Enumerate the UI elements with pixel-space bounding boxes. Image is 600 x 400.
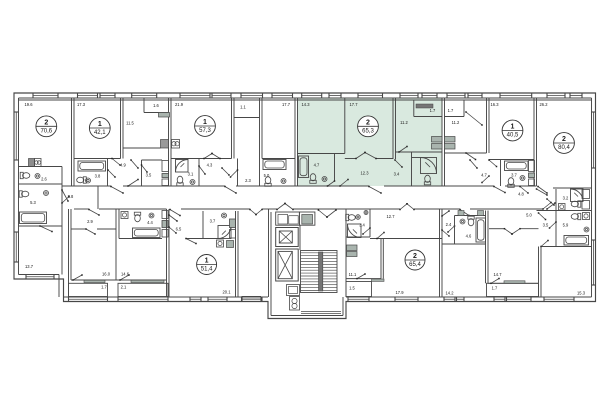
- svg-text:20.1: 20.1: [223, 290, 232, 295]
- svg-text:4.8: 4.8: [518, 192, 524, 197]
- svg-text:2.1: 2.1: [121, 285, 127, 290]
- svg-text:16.3: 16.3: [491, 102, 500, 107]
- svg-text:80,4: 80,4: [558, 145, 570, 151]
- svg-text:4.4: 4.4: [147, 220, 153, 225]
- svg-text:1.1: 1.1: [240, 105, 246, 110]
- svg-text:2.6: 2.6: [41, 177, 47, 182]
- svg-text:15.3: 15.3: [577, 291, 586, 296]
- svg-text:11.5: 11.5: [126, 121, 134, 126]
- svg-text:1.7: 1.7: [492, 286, 498, 291]
- svg-text:14.7: 14.7: [494, 272, 503, 277]
- svg-text:1: 1: [205, 258, 209, 265]
- svg-text:11.2: 11.2: [452, 120, 460, 125]
- svg-text:3.7: 3.7: [210, 219, 216, 224]
- svg-text:3.2: 3.2: [563, 196, 569, 201]
- svg-text:3.4: 3.4: [394, 172, 400, 177]
- svg-text:12.3: 12.3: [361, 171, 370, 176]
- svg-text:12.7: 12.7: [387, 214, 396, 219]
- svg-text:1.7: 1.7: [430, 108, 436, 113]
- svg-text:17.7: 17.7: [350, 102, 359, 107]
- svg-text:2.9: 2.9: [87, 219, 93, 224]
- svg-text:14.3: 14.3: [302, 102, 311, 107]
- svg-text:2: 2: [413, 253, 417, 260]
- svg-text:13.7: 13.7: [25, 264, 34, 269]
- svg-text:2.3: 2.3: [245, 178, 251, 183]
- svg-text:4.7: 4.7: [481, 173, 487, 178]
- svg-text:57,3: 57,3: [199, 128, 211, 134]
- svg-text:5.9: 5.9: [563, 223, 569, 228]
- svg-text:17.7: 17.7: [282, 102, 291, 107]
- svg-text:1.6: 1.6: [153, 103, 159, 108]
- svg-text:3.5: 3.5: [146, 173, 152, 178]
- svg-text:4.3: 4.3: [207, 163, 213, 168]
- svg-text:11.1: 11.1: [349, 272, 357, 277]
- svg-text:3.7: 3.7: [511, 173, 517, 178]
- svg-text:51,4: 51,4: [201, 267, 213, 273]
- svg-text:21.9: 21.9: [175, 102, 184, 107]
- svg-text:1.7: 1.7: [448, 108, 454, 113]
- svg-text:1.5: 1.5: [349, 286, 355, 291]
- svg-text:65,3: 65,3: [362, 129, 374, 135]
- svg-text:70,6: 70,6: [40, 129, 52, 135]
- svg-text:26.2: 26.2: [540, 102, 549, 107]
- svg-text:17.9: 17.9: [396, 290, 405, 295]
- svg-text:1.7: 1.7: [101, 285, 107, 290]
- svg-text:3.4: 3.4: [359, 223, 365, 228]
- svg-text:14.2: 14.2: [446, 291, 455, 296]
- svg-text:11.2: 11.2: [400, 120, 408, 125]
- svg-text:65,4: 65,4: [409, 262, 421, 268]
- svg-text:3.8: 3.8: [95, 174, 101, 179]
- svg-text:2: 2: [562, 136, 566, 143]
- svg-text:5.3: 5.3: [30, 200, 36, 205]
- svg-text:2: 2: [366, 120, 370, 127]
- svg-text:1: 1: [98, 121, 102, 128]
- svg-text:4.7: 4.7: [314, 163, 320, 168]
- svg-text:3.5: 3.5: [543, 223, 549, 228]
- svg-text:1: 1: [203, 119, 207, 126]
- svg-text:2: 2: [44, 120, 48, 127]
- svg-text:6.5: 6.5: [176, 227, 182, 232]
- svg-text:40,5: 40,5: [507, 133, 519, 139]
- svg-text:2.4: 2.4: [446, 222, 452, 227]
- svg-text:5.0: 5.0: [526, 213, 532, 218]
- svg-text:42,1: 42,1: [94, 130, 106, 136]
- svg-text:17.3: 17.3: [77, 102, 86, 107]
- svg-text:19.6: 19.6: [25, 102, 34, 107]
- svg-text:4.6: 4.6: [466, 234, 472, 239]
- svg-text:1: 1: [511, 124, 515, 131]
- svg-text:4.9: 4.9: [120, 163, 126, 168]
- svg-text:3.1: 3.1: [188, 172, 194, 177]
- svg-text:16.0: 16.0: [102, 272, 111, 277]
